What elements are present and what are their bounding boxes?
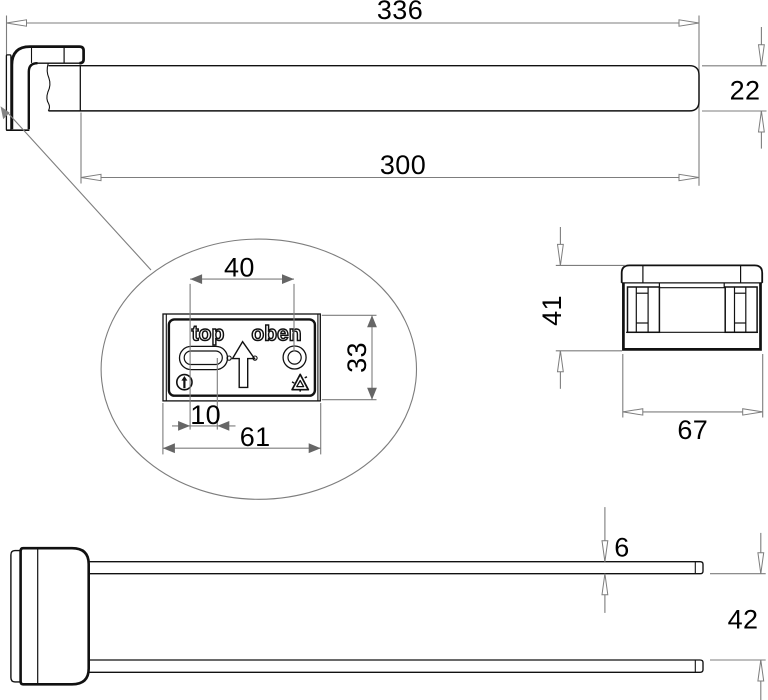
svg-text:42: 42 <box>728 605 759 635</box>
svg-text:61: 61 <box>240 422 271 452</box>
svg-text:41: 41 <box>537 295 567 326</box>
svg-text:10: 10 <box>190 400 221 430</box>
svg-text:336: 336 <box>377 0 423 25</box>
svg-text:300: 300 <box>380 150 426 180</box>
svg-text:22: 22 <box>730 76 761 106</box>
svg-text:33: 33 <box>342 342 372 373</box>
svg-text:top: top <box>192 322 225 345</box>
svg-text:40: 40 <box>224 252 255 282</box>
svg-text:67: 67 <box>677 415 708 445</box>
svg-text:6: 6 <box>614 533 629 563</box>
